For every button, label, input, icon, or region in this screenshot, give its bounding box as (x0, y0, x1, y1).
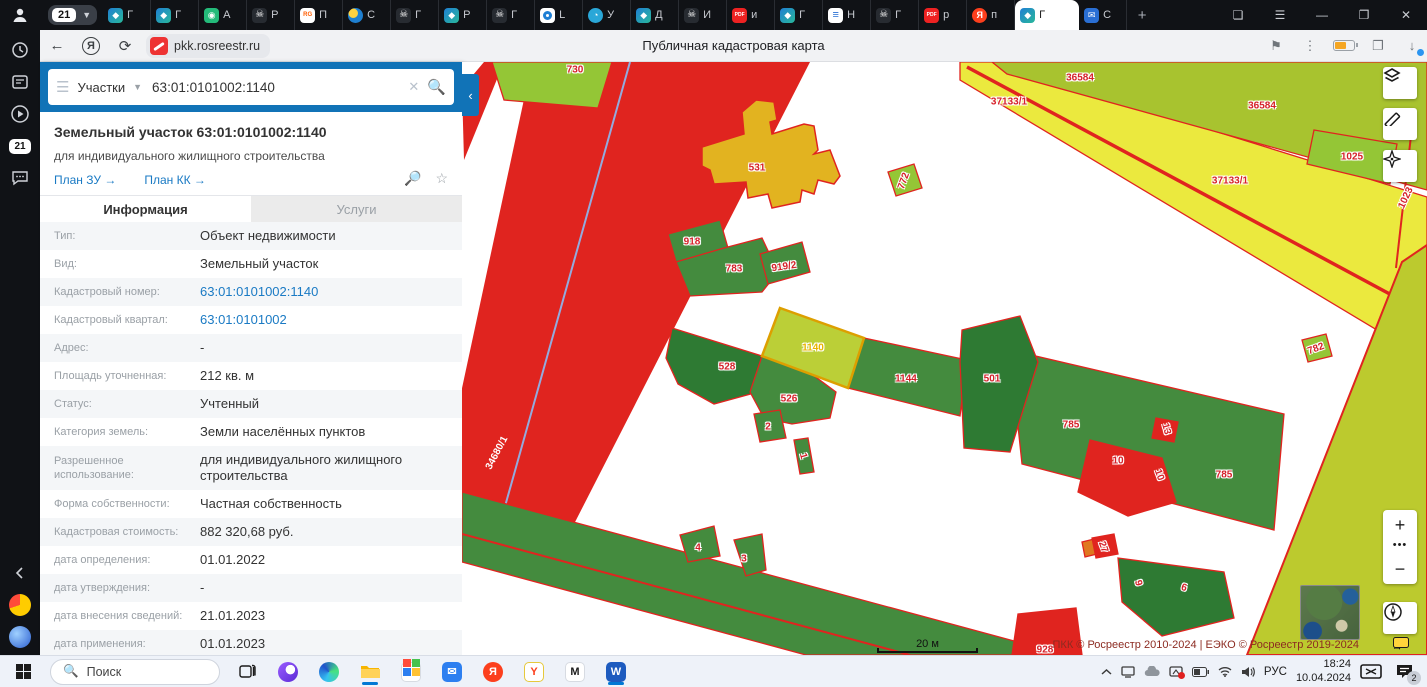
back-button[interactable]: ← (40, 33, 74, 59)
clock[interactable]: 18:24 10.04.2024 (1296, 658, 1351, 686)
skull-favicon: ☠ (492, 8, 507, 23)
chat-icon[interactable] (6, 164, 34, 192)
task-view-icon[interactable] (230, 658, 264, 686)
bookmark-flag-icon[interactable]: ⚑ (1261, 33, 1291, 59)
row-value: 01.01.2023 (200, 632, 265, 655)
search-placeholder: Поиск (87, 665, 122, 679)
row-label: Форма собственности: (54, 493, 200, 515)
taskbar-search[interactable]: 🔍 Поиск (50, 659, 220, 685)
parcel-info-panel: ☰ Участки ▼ ✕ 🔍 Земельный участок 63:01:… (40, 62, 462, 655)
tab-title: Г (415, 9, 421, 21)
browser-tab-bar: 21 ▼ ◆Г◆Г◉А☠РRGПС☠Г◆Р☠ГL◔У◆Д☠ИPDFи◆Г≡Н☠Г… (0, 0, 1427, 30)
table-row: Адрес:- (40, 334, 462, 362)
skull-favicon: ☠ (396, 8, 411, 23)
row-value-link[interactable]: 63:01:0101002 (200, 308, 287, 332)
row-value: - (200, 336, 204, 360)
row-label: Разрешенное использование: (54, 450, 200, 487)
tab-active[interactable]: ◆Г (1015, 0, 1079, 30)
row-value: Частная собственность (200, 492, 342, 516)
system-tray: РУС 18:24 10.04.2024 2 (1101, 658, 1421, 686)
notification-badge: 2 (1407, 671, 1421, 685)
tab-title: Г (799, 9, 805, 21)
y-services-app-icon[interactable]: Y (517, 658, 551, 686)
pdf-favicon: PDF (732, 8, 747, 23)
tab[interactable]: ◆Д (631, 0, 679, 30)
tab[interactable]: ≡Н (823, 0, 871, 30)
tab[interactable]: L (535, 0, 583, 30)
parcel-label-1025[interactable]: 1025 (1341, 152, 1363, 163)
parcel-label-37133-1[interactable]: 37133/1 (1212, 176, 1248, 187)
taskbar-apps: ✉ Я Y M W (230, 658, 633, 686)
tab-information[interactable]: Информация (40, 196, 251, 222)
alice-app-icon[interactable] (271, 658, 305, 686)
more-options-icon[interactable]: ⋮ (1295, 33, 1325, 59)
panel-collapse-chevron[interactable]: ‹ (462, 74, 479, 116)
tab[interactable]: ☠Г (391, 0, 439, 30)
row-label: Площадь уточненная: (54, 365, 200, 387)
parcel-label-2[interactable]: 2 (765, 422, 771, 433)
tray-time: 18:24 (1296, 658, 1351, 672)
reload-button[interactable]: ⟳ (108, 33, 142, 59)
tab-title: П (319, 9, 327, 21)
plan-zu-link[interactable]: План ЗУ → (54, 173, 116, 187)
row-label: Тип: (54, 225, 200, 247)
browser-toolbar: Публичная кадастровая карта ← Я ⟳ pkk.ro… (40, 30, 1427, 62)
clear-search-icon[interactable]: ✕ (408, 79, 419, 95)
table-row: Тип:Объект недвижимости (40, 222, 462, 250)
tab[interactable]: PDFи (727, 0, 775, 30)
battery-icon[interactable] (1192, 667, 1209, 677)
parcel-label-501[interactable]: 501 (984, 374, 1001, 385)
layers-button[interactable] (1383, 67, 1417, 99)
tray-expand-icon[interactable] (1101, 668, 1112, 676)
parcel-label-36584[interactable]: 36584 (1066, 73, 1094, 84)
table-row: Кадастровый квартал:63:01:0101002 (40, 306, 462, 334)
parcel-subtitle: для индивидуального жилищного строительс… (54, 149, 448, 163)
row-label: Кадастровый номер: (54, 281, 200, 303)
tab[interactable]: ◉А (199, 0, 247, 30)
window-controls: ❏ ☰ — ❐ ✕ (1217, 0, 1427, 30)
table-row: Кадастровая стоимость:882 320,68 руб. (40, 518, 462, 546)
plan-kk-link[interactable]: План КК → (144, 173, 206, 187)
tab-title: Р (463, 9, 470, 21)
parcel-label-526[interactable]: 526 (781, 394, 798, 405)
tab-services[interactable]: Услуги (251, 196, 462, 222)
table-row: Форма собственности:Частная собственност… (40, 490, 462, 518)
tab-title: С (367, 9, 375, 21)
table-row: дата утверждения:- (40, 574, 462, 602)
security-alert-icon[interactable] (1169, 666, 1183, 678)
row-label: Статус: (54, 393, 200, 415)
tray-date: 10.04.2024 (1296, 672, 1351, 686)
history-clock-icon[interactable] (6, 36, 34, 64)
tabs-counter-badge[interactable]: 21 (6, 132, 34, 160)
planet-favicon: ◔ (588, 8, 603, 23)
tab-title: Р (271, 9, 278, 21)
map-attribution: ПКК © Росреестр 2010-2024 | ЕЭКО © Росре… (1053, 639, 1360, 651)
tab-strip: ◆Г◆Г◉А☠РRGПС☠Г◆Р☠ГL◔У◆Д☠ИPDFи◆Г≡Н☠ГPDFрЯ… (103, 0, 1127, 30)
wifi-icon[interactable] (1218, 666, 1232, 677)
video-play-icon[interactable] (6, 100, 34, 128)
screen: 21 ▼ ◆Г◆Г◉А☠РRGПС☠Г◆Р☠ГL◔У◆Д☠ИPDFи◆Г≡Н☠Г… (0, 0, 1427, 687)
row-label: Кадастровый квартал: (54, 309, 200, 331)
row-label: дата применения: (54, 633, 200, 655)
url-text[interactable]: pkk.rosreestr.ru (174, 39, 260, 53)
tab[interactable]: ☠Р (247, 0, 295, 30)
lines-favicon: ≡ (828, 8, 843, 23)
row-value: Земли населённых пунктов (200, 420, 365, 444)
browser-sidebar: 21 (0, 30, 40, 655)
tab[interactable]: Яп (967, 0, 1015, 30)
parcel-label-528[interactable]: 528 (719, 362, 736, 373)
favorite-star-icon[interactable]: ☆ (435, 170, 448, 187)
row-value: 882 320,68 руб. (200, 520, 293, 544)
sphere-favicon (348, 8, 363, 23)
tab-title: А (223, 9, 230, 21)
parcel-label-730[interactable]: 730 (567, 65, 584, 76)
row-label: Категория земель: (54, 421, 200, 443)
tab[interactable]: ◆Г (103, 0, 151, 30)
tab[interactable]: ✉С (1079, 0, 1127, 30)
device-icon[interactable] (1121, 666, 1135, 678)
pdf-favicon: PDF (924, 8, 939, 23)
search-input[interactable] (150, 79, 400, 96)
scale-bar: 20 м (877, 638, 978, 653)
new-tab-button[interactable]: + (1127, 0, 1157, 30)
yandex-browser-app-icon[interactable]: Я (476, 658, 510, 686)
row-value: 01.01.2022 (200, 548, 265, 572)
tab-count-badge: 21 (52, 8, 76, 22)
search-icon[interactable]: 🔍 (427, 78, 446, 96)
profile-avatar-icon[interactable] (0, 0, 40, 30)
skull-favicon: ☠ (684, 8, 699, 23)
skull-favicon: ☠ (252, 8, 267, 23)
side-panels-icon[interactable]: ❏ (1217, 0, 1259, 30)
row-value: 212 кв. м (200, 364, 254, 388)
chevron-down-icon[interactable]: ▼ (133, 82, 142, 92)
skull-favicon: ☠ (876, 8, 891, 23)
mail-app-icon[interactable]: ✉ (435, 658, 469, 686)
zoom-in-button[interactable]: + (1383, 510, 1417, 540)
tab-title: Г (511, 9, 517, 21)
chevron-down-icon: ▼ (82, 10, 91, 20)
tab[interactable]: ◆Р (439, 0, 487, 30)
tab-title: Г (895, 9, 901, 21)
search-icon: 🔍 (63, 664, 79, 679)
ya-favicon: Я (972, 8, 987, 23)
table-row: Площадь уточненная:212 кв. м (40, 362, 462, 390)
row-label: дата определения: (54, 549, 200, 571)
parcel-label-3[interactable]: 3 (741, 554, 747, 565)
battery-extension-icon[interactable] (1329, 33, 1359, 59)
parcel-label-928[interactable]: 928 (1037, 645, 1054, 656)
yandex-button[interactable]: Я (74, 33, 108, 59)
row-label: Вид: (54, 253, 200, 275)
tab-title: Г (1039, 9, 1045, 21)
parcel-label-1144[interactable]: 1144 (895, 374, 917, 385)
parcel-attributes-table: Тип:Объект недвижимостиВид:Земельный уча… (40, 222, 462, 655)
parcel-label-1140[interactable]: 1140 (802, 343, 824, 354)
parcel-label-37133-1[interactable]: 37133/1 (991, 97, 1027, 108)
tab-title: п (991, 9, 997, 21)
panel-tabs: Информация Услуги (40, 195, 462, 222)
zoom-more-button[interactable]: ••• (1393, 540, 1408, 554)
explorer-app-icon[interactable] (353, 658, 387, 686)
parcel-label-4[interactable]: 4 (695, 543, 701, 554)
parcel-label-785[interactable]: 785 (1063, 420, 1080, 431)
gem-favicon: ◆ (444, 8, 459, 23)
zoom-out-button[interactable]: − (1383, 554, 1417, 584)
compass-button[interactable] (1383, 602, 1417, 634)
miro-app-icon[interactable]: M (558, 658, 592, 686)
measure-ruler-button[interactable] (1383, 108, 1417, 140)
row-value-link[interactable]: 63:01:0101002:1140 (200, 280, 318, 304)
tab[interactable]: ☠Г (487, 0, 535, 30)
mail-favicon: ✉ (1084, 8, 1099, 23)
word-app-icon[interactable]: W (599, 658, 633, 686)
row-label: дата утверждения: (54, 577, 200, 599)
windows-taskbar: 🔍 Поиск ✉ Я Y M W (0, 655, 1427, 687)
zoom-controls: + ••• − (1383, 510, 1417, 584)
search-category-select[interactable]: Участки (77, 80, 125, 95)
row-value: для индивидуального жилищного строительс… (200, 448, 448, 489)
table-row: Разрешенное использование:для индивидуал… (40, 446, 462, 490)
tab-title: Д (655, 9, 662, 21)
table-row: Вид:Земельный участок (40, 250, 462, 278)
row-label: Кадастровая стоимость: (54, 521, 200, 543)
gem-favicon: ◆ (108, 8, 123, 23)
alice-assistant-icon[interactable] (6, 591, 34, 619)
edge-app-icon[interactable] (312, 658, 346, 686)
rgru-favicon: RG (300, 8, 315, 23)
gem-favicon: ◆ (156, 8, 171, 23)
search-header: ☰ Участки ▼ ✕ 🔍 (40, 62, 462, 112)
store-app-icon[interactable] (394, 658, 428, 686)
feed-panel-icon[interactable] (6, 68, 34, 96)
table-row: Кадастровый номер:63:01:0101002:1140 (40, 278, 462, 306)
restore-button[interactable]: ❐ (1343, 0, 1385, 30)
row-label: Адрес: (54, 337, 200, 359)
parcel-header: Земельный участок 63:01:0101002:1140 для… (40, 112, 462, 195)
address-bar[interactable]: pkk.rosreestr.ru (146, 34, 270, 58)
download-badge (1416, 48, 1425, 57)
overview-minimap[interactable] (1300, 585, 1360, 640)
search-box: ☰ Участки ▼ ✕ 🔍 (48, 69, 454, 105)
row-label: дата внесения сведений: (54, 605, 200, 627)
tab-title: Г (127, 9, 133, 21)
table-row: Статус:Учтенный (40, 390, 462, 418)
robot-favicon: ◉ (204, 8, 219, 23)
parcel-label-10[interactable]: 10 (1112, 456, 1123, 467)
row-value: Учтенный (200, 392, 259, 416)
row-value: Земельный участок (200, 252, 318, 276)
table-row: дата применения:01.01.2023 (40, 630, 462, 655)
parcel-title: Земельный участок 63:01:0101002:1140 (54, 124, 448, 140)
tab-title: Г (175, 9, 181, 21)
cadastral-map[interactable]: ‹ (462, 62, 1427, 655)
gem-favicon: ◆ (636, 8, 651, 23)
menu-icon[interactable]: ☰ (1259, 0, 1301, 30)
table-row: Категория земель:Земли населённых пункто… (40, 418, 462, 446)
minimize-button[interactable]: — (1301, 0, 1343, 30)
table-row: дата внесения сведений:21.01.2023 (40, 602, 462, 630)
tab-title: У (607, 9, 614, 21)
notification-center-icon[interactable]: 2 (1391, 661, 1417, 683)
tab-title: и (751, 9, 757, 21)
parcel-label-531[interactable]: 531 (749, 163, 766, 174)
map-canvas (462, 62, 1427, 655)
tab[interactable]: ◆Г (151, 0, 199, 30)
tab-group-pill[interactable]: 21 ▼ (48, 5, 97, 25)
tab[interactable]: ☠И (679, 0, 727, 30)
locate-button[interactable] (1383, 150, 1417, 182)
row-value: - (200, 576, 204, 600)
protect-shield-icon[interactable] (150, 37, 168, 55)
row-value: Объект недвижимости (200, 224, 336, 248)
parcel-label-785[interactable]: 785 (1216, 470, 1233, 481)
tab[interactable]: ☠Г (871, 0, 919, 30)
onedrive-cloud-icon[interactable] (1144, 666, 1160, 677)
tab-title: С (1103, 9, 1111, 21)
tab-title: Н (847, 9, 855, 21)
ring-favicon (540, 8, 555, 23)
preview-doc-icon[interactable]: 🔎 (404, 170, 421, 187)
menu-burger-icon[interactable]: ☰ (56, 78, 69, 96)
sidebar-collapse-icon[interactable] (6, 559, 34, 587)
tab[interactable]: PDFр (919, 0, 967, 30)
table-row: дата определения:01.01.2022 (40, 546, 462, 574)
parcel-label-36584[interactable]: 36584 (1248, 101, 1276, 112)
parcel-label-918[interactable]: 918 (684, 237, 701, 248)
tab[interactable]: ◆Г (775, 0, 823, 30)
start-button[interactable] (6, 658, 40, 686)
close-button[interactable]: ✕ (1385, 0, 1427, 30)
collections-icon[interactable]: ❐ (1363, 33, 1393, 59)
volume-icon[interactable] (1241, 666, 1255, 678)
tab[interactable]: RGП (295, 0, 343, 30)
tab[interactable]: ◔У (583, 0, 631, 30)
tab[interactable]: С (343, 0, 391, 30)
services-circle-icon[interactable] (6, 623, 34, 651)
language-indicator[interactable]: РУС (1264, 666, 1287, 678)
tab-title: р (943, 9, 949, 21)
row-value: 21.01.2023 (200, 604, 265, 628)
tab-title: И (703, 9, 711, 21)
touch-keyboard-icon[interactable] (1360, 664, 1382, 679)
tab-title: L (559, 9, 565, 21)
gem-favicon: ◆ (1020, 8, 1035, 23)
gem-favicon: ◆ (780, 8, 795, 23)
parcel-label-783[interactable]: 783 (726, 264, 743, 275)
downloads-icon[interactable]: ↓ (1397, 33, 1427, 59)
